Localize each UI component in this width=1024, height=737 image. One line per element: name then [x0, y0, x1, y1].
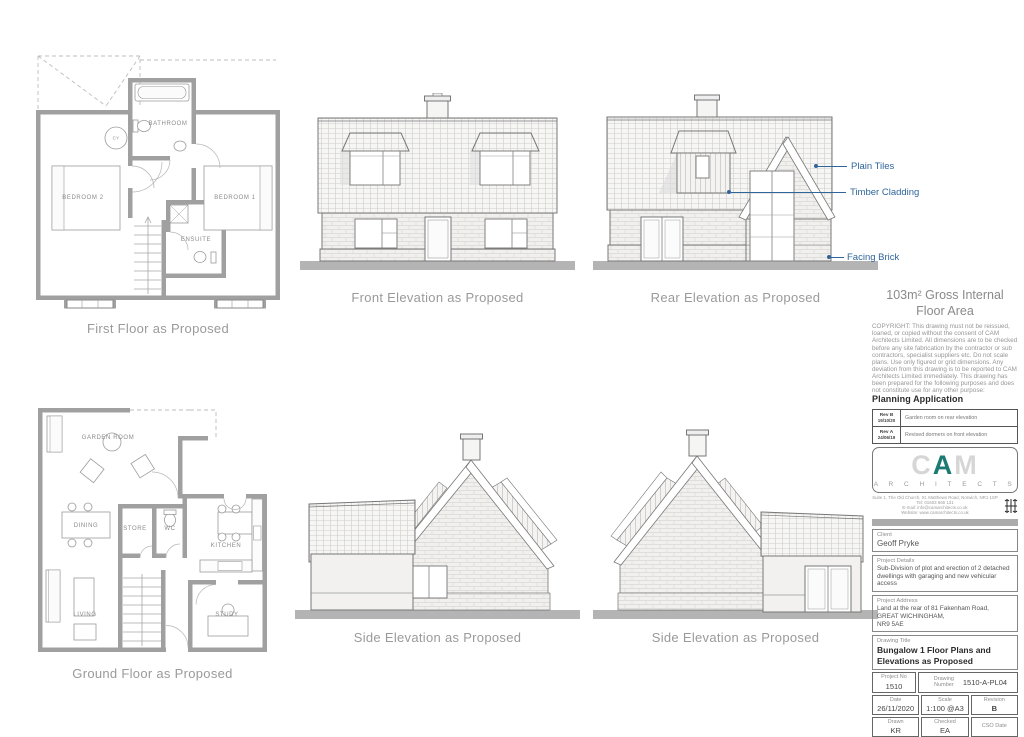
side-elevation-left-block: Side Elevation as Proposed — [295, 430, 580, 645]
ground-floor-plan-drawing: GARDEN ROOM DINING STORE WC KITCHEN LIVI… — [30, 400, 275, 658]
revision-table: Rev B 19/10/20 Garden room on rear eleva… — [872, 409, 1018, 444]
front-elevation-drawing — [300, 93, 575, 283]
plain-tiles-leader-line — [818, 166, 847, 167]
room-label-garden-room: GARDEN ROOM — [82, 435, 135, 441]
checked-value: EA — [940, 726, 950, 735]
plain-tiles-annotation: Plain Tiles — [851, 161, 894, 172]
project-address-line3: NR9 5AE — [877, 621, 1013, 629]
side-elevation-right-block: Side Elevation as Proposed — [593, 428, 878, 645]
date-value: 26/11/2020 — [877, 704, 914, 713]
revision-value: B — [992, 704, 997, 713]
project-no-value: 1510 — [886, 682, 903, 691]
project-address-label: Project Address — [877, 598, 1013, 604]
logo-letter-c: C — [911, 450, 933, 480]
ground-floor-plan-block: GARDEN ROOM DINING STORE WC KITCHEN LIVI… — [30, 400, 275, 681]
date-cell: Date 26/11/2020 — [872, 695, 919, 715]
side-elevation-left-drawing — [295, 430, 580, 622]
room-label-living: LIVING — [73, 612, 96, 618]
room-label-bathroom: BATHROOM — [148, 121, 187, 127]
facing-brick-leader-dot — [827, 255, 831, 259]
cso-date-cell: CSO Date — [971, 717, 1018, 737]
facing-brick-annotation: Facing Brick — [847, 252, 899, 263]
project-details-label: Project Details — [877, 558, 1013, 564]
copyright-text: COPYRIGHT: This drawing must not be reis… — [872, 323, 1017, 394]
first-floor-caption: First Floor as Proposed — [28, 321, 288, 336]
revision-desc: Revised dormers on front elevation — [901, 427, 1017, 443]
side-elevation-right-caption: Side Elevation as Proposed — [593, 630, 878, 645]
rear-elevation-drawing — [593, 93, 878, 283]
revision-date: 24/06/19 — [878, 435, 896, 440]
client-box: Client Geoff Pryke — [872, 529, 1018, 553]
revision-cell: Revision B — [971, 695, 1018, 715]
logo-word-architects: A R C H I T E C T S — [874, 481, 1016, 488]
drawing-title-value: Bungalow 1 Floor Plans and Elevations as… — [877, 645, 1013, 666]
room-label-study: STUDY — [215, 612, 238, 618]
timber-cladding-annotation: Timber Cladding — [850, 187, 919, 198]
revision-row: Rev B 19/10/20 Garden room on rear eleva… — [873, 410, 1017, 427]
drawing-title-label: Drawing Title — [877, 638, 1013, 644]
accreditation-emblem-icon — [1004, 498, 1018, 514]
drawn-value: KR — [890, 726, 900, 735]
drawing-title-box: Drawing Title Bungalow 1 Floor Plans and… — [872, 635, 1018, 670]
plain-tiles-leader-dot — [814, 164, 818, 168]
logo-letter-a: A — [933, 450, 955, 480]
room-label-kitchen: KITCHEN — [211, 543, 242, 549]
client-label: Client — [877, 532, 1013, 538]
room-label-bedroom1: BEDROOM 1 — [214, 195, 255, 201]
front-elevation-block: Front Elevation as Proposed — [300, 93, 575, 305]
gross-area-heading: 103m² Gross Internal Floor Area — [872, 288, 1018, 319]
front-elevation-caption: Front Elevation as Proposed — [300, 290, 575, 305]
architect-address-line1: Suite 1, The Old Church, St. Matthews Ro… — [872, 495, 998, 500]
revision-row: Rev A 24/06/19 Revised dormers on front … — [873, 427, 1017, 443]
scale-cell: Scale 1:100 @A3 — [921, 695, 968, 715]
drawing-number-value: 1510-A-PL04 — [963, 678, 1007, 687]
first-floor-plan-drawing: BEDROOM 2 BATHROOM CY BEDROOM 1 ENSUITE — [28, 48, 288, 313]
ground-floor-caption: Ground Floor as Proposed — [30, 666, 275, 681]
revision-desc: Garden room on rear elevation — [901, 410, 1017, 426]
architect-address-line4: Website: www.camarchitects.co.uk — [872, 510, 998, 515]
copyright-note: COPYRIGHT: This drawing must not be reis… — [872, 323, 1018, 404]
client-value: Geoff Pryke — [877, 539, 1013, 549]
side-elevation-right-drawing — [593, 428, 878, 622]
timber-cladding-leader-line — [731, 192, 846, 193]
room-label-cy: CY — [113, 136, 120, 141]
room-label-ensuite: ENSUITE — [181, 237, 211, 243]
project-details-box: Project Details Sub-Division of plot and… — [872, 555, 1018, 592]
drawing-number-cell: Drawing Number 1510-A-PL04 — [918, 672, 1018, 692]
project-number-row: Project No 1510 Drawing Number 1510-A-PL… — [872, 672, 1018, 692]
drawn-cell: Drawn KR — [872, 717, 919, 737]
scale-value: 1:100 @A3 — [926, 704, 964, 713]
checked-cell: Checked EA — [921, 717, 968, 737]
title-block-divider — [872, 519, 1018, 526]
room-label-store: STORE — [123, 526, 147, 532]
title-block: 103m² Gross Internal Floor Area COPYRIGH… — [872, 288, 1018, 737]
rear-elevation-block: Rear Elevation as Proposed — [593, 93, 878, 305]
facing-brick-leader-line — [831, 257, 844, 258]
project-details-value: Sub-Division of plot and erection of 2 d… — [877, 565, 1013, 588]
cam-architects-logo: CAM A R C H I T E C T S — [872, 447, 1018, 493]
timber-cladding-leader-dot — [727, 190, 731, 194]
room-label-bedroom2: BEDROOM 2 — [62, 195, 103, 201]
rear-elevation-caption: Rear Elevation as Proposed — [593, 290, 878, 305]
architect-address-block: Suite 1, The Old Church, St. Matthews Ro… — [872, 495, 1018, 517]
room-label-wc: WC — [164, 526, 175, 532]
date-scale-revision-row: Date 26/11/2020 Scale 1:100 @A3 Revision… — [872, 695, 1018, 715]
project-address-box: Project Address Land at the rear of 81 F… — [872, 595, 1018, 632]
side-elevation-left-caption: Side Elevation as Proposed — [295, 630, 580, 645]
purpose-label: Planning Application — [872, 394, 963, 404]
logo-letter-m: M — [954, 450, 979, 480]
project-no-cell: Project No 1510 — [872, 672, 916, 692]
first-floor-plan-block: BEDROOM 2 BATHROOM CY BEDROOM 1 ENSUITE … — [28, 48, 288, 336]
project-address-line2: GREAT WICHINGHAM, — [877, 613, 1013, 621]
project-address-line1: Land at the rear of 81 Fakenham Road, — [877, 605, 1013, 613]
revision-date: 19/10/20 — [878, 418, 896, 423]
drawn-checked-cso-row: Drawn KR Checked EA CSO Date — [872, 717, 1018, 737]
room-label-dining: DINING — [74, 523, 99, 529]
